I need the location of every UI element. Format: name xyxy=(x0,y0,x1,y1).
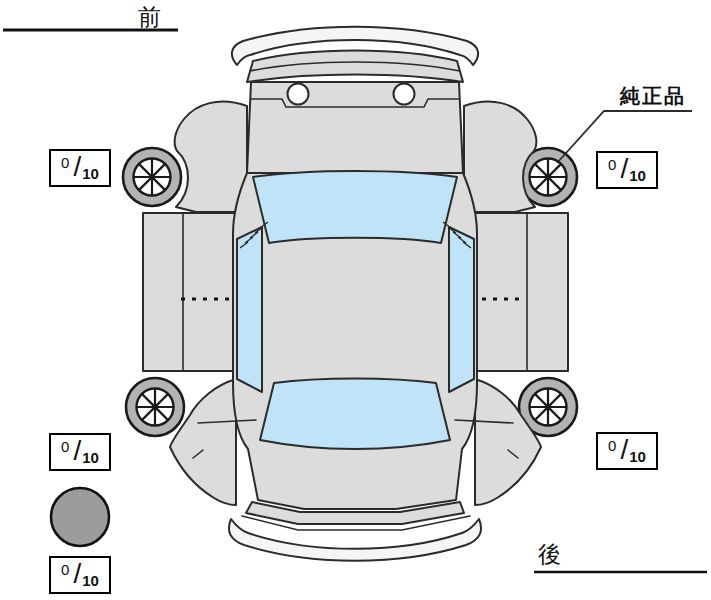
genuine-parts-label: 純正品 xyxy=(620,83,686,110)
spare-tire-icon xyxy=(51,488,109,546)
wheel-front-left-icon xyxy=(123,148,181,206)
tread-slash: / xyxy=(620,436,628,464)
tread-box-rear-right: 0 / 10 xyxy=(596,432,658,470)
door-panel-left xyxy=(143,213,236,371)
fender-front-right xyxy=(464,102,536,212)
rear-bumper xyxy=(229,519,481,561)
tread-slash: / xyxy=(620,155,628,183)
front-label: 前 xyxy=(138,2,161,33)
rear-window xyxy=(260,379,450,450)
tread-slash: / xyxy=(73,153,81,181)
rear-label: 後 xyxy=(538,539,561,570)
side-window-left xyxy=(237,227,262,392)
windshield xyxy=(253,171,457,243)
door-panel-right xyxy=(475,213,568,371)
tread-value-rear-left: 0 xyxy=(61,439,69,454)
car-topview-drawing xyxy=(0,0,711,600)
tread-value-spare: 0 xyxy=(61,562,69,577)
fender-front-left xyxy=(175,102,247,212)
headlight-right-icon xyxy=(394,84,415,105)
hood xyxy=(247,82,463,173)
vehicle-condition-diagram: 前 後 純正品 0 / 10 0 / 10 0 / 10 0 / 10 0 / … xyxy=(0,0,711,600)
headlight-left-icon xyxy=(288,84,309,105)
wheel-rear-left-icon xyxy=(126,378,184,436)
tread-value-rear-right: 0 xyxy=(608,438,616,453)
tread-slash: / xyxy=(73,437,81,465)
tread-box-front-right: 0 / 10 xyxy=(596,151,658,189)
tread-max-spare: 10 xyxy=(82,573,99,588)
tread-box-rear-left: 0 / 10 xyxy=(49,433,111,471)
tread-box-spare: 0 / 10 xyxy=(49,556,111,594)
tread-value-front-right: 0 xyxy=(608,157,616,172)
tread-max-rear-right: 10 xyxy=(629,449,646,464)
tread-box-front-left: 0 / 10 xyxy=(49,149,111,187)
tread-value-front-left: 0 xyxy=(61,155,69,170)
side-window-right xyxy=(449,227,474,392)
tread-max-front-right: 10 xyxy=(629,168,646,183)
tread-max-front-left: 10 xyxy=(82,166,99,181)
tread-slash: / xyxy=(73,560,81,588)
tread-max-rear-left: 10 xyxy=(82,450,99,465)
